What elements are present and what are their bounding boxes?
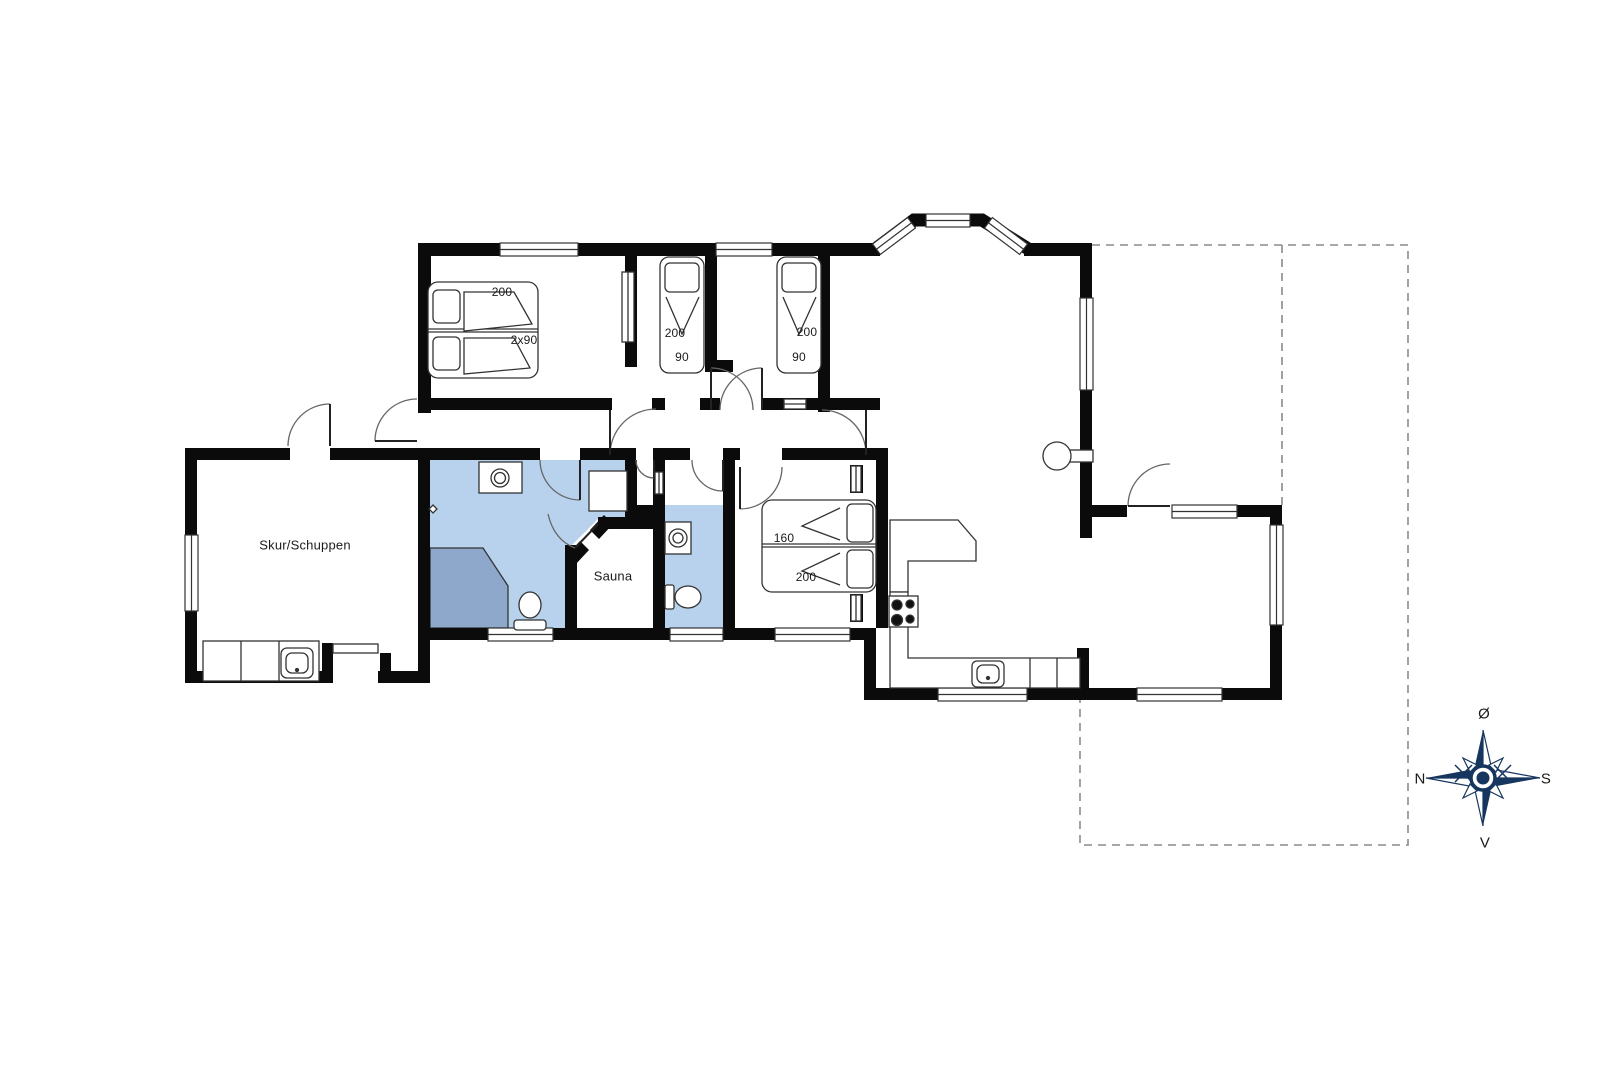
sink-bathroom2 xyxy=(665,522,691,554)
bed2-length-label: 200 xyxy=(665,326,686,340)
compass-west-label: V xyxy=(1480,835,1490,852)
wardrobe xyxy=(622,272,634,342)
bathroom-cabinet xyxy=(589,471,627,511)
compass-south-label: S xyxy=(1541,771,1551,788)
compass-east-label: Ø xyxy=(1478,706,1490,723)
bed3-width-label: 90 xyxy=(792,350,806,364)
bed3-length-label: 200 xyxy=(797,325,818,339)
stove xyxy=(889,596,918,627)
room-label-sauna: Sauna xyxy=(594,569,633,584)
bed1-width-label: 2x90 xyxy=(511,333,538,347)
shed-counter-sink xyxy=(203,641,319,681)
bed-double-bedroom1 xyxy=(428,282,538,378)
bed-double-bedroom4 xyxy=(762,500,876,592)
shed-door-leaf xyxy=(333,644,378,653)
bed1-length-label: 200 xyxy=(492,285,513,299)
bed4-length-label: 200 xyxy=(796,570,817,584)
compass-rose-icon xyxy=(1426,730,1540,826)
bed4-width-label: 160 xyxy=(774,531,795,545)
walls xyxy=(185,243,1282,700)
floor-plan-canvas: 200 2x90 200 90 200 90 160 200 Skur/Schu… xyxy=(0,0,1600,1066)
washing-machine xyxy=(479,462,522,493)
room-label-shed: Skur/Schuppen xyxy=(259,538,351,553)
kitchen-sink xyxy=(972,661,1004,687)
floor-plan-drawing xyxy=(0,0,1600,1066)
terrace-outline xyxy=(1080,245,1408,845)
toilet-bathroom2 xyxy=(665,585,701,609)
compass-north-label: N xyxy=(1414,771,1425,788)
bed2-width-label: 90 xyxy=(675,350,689,364)
